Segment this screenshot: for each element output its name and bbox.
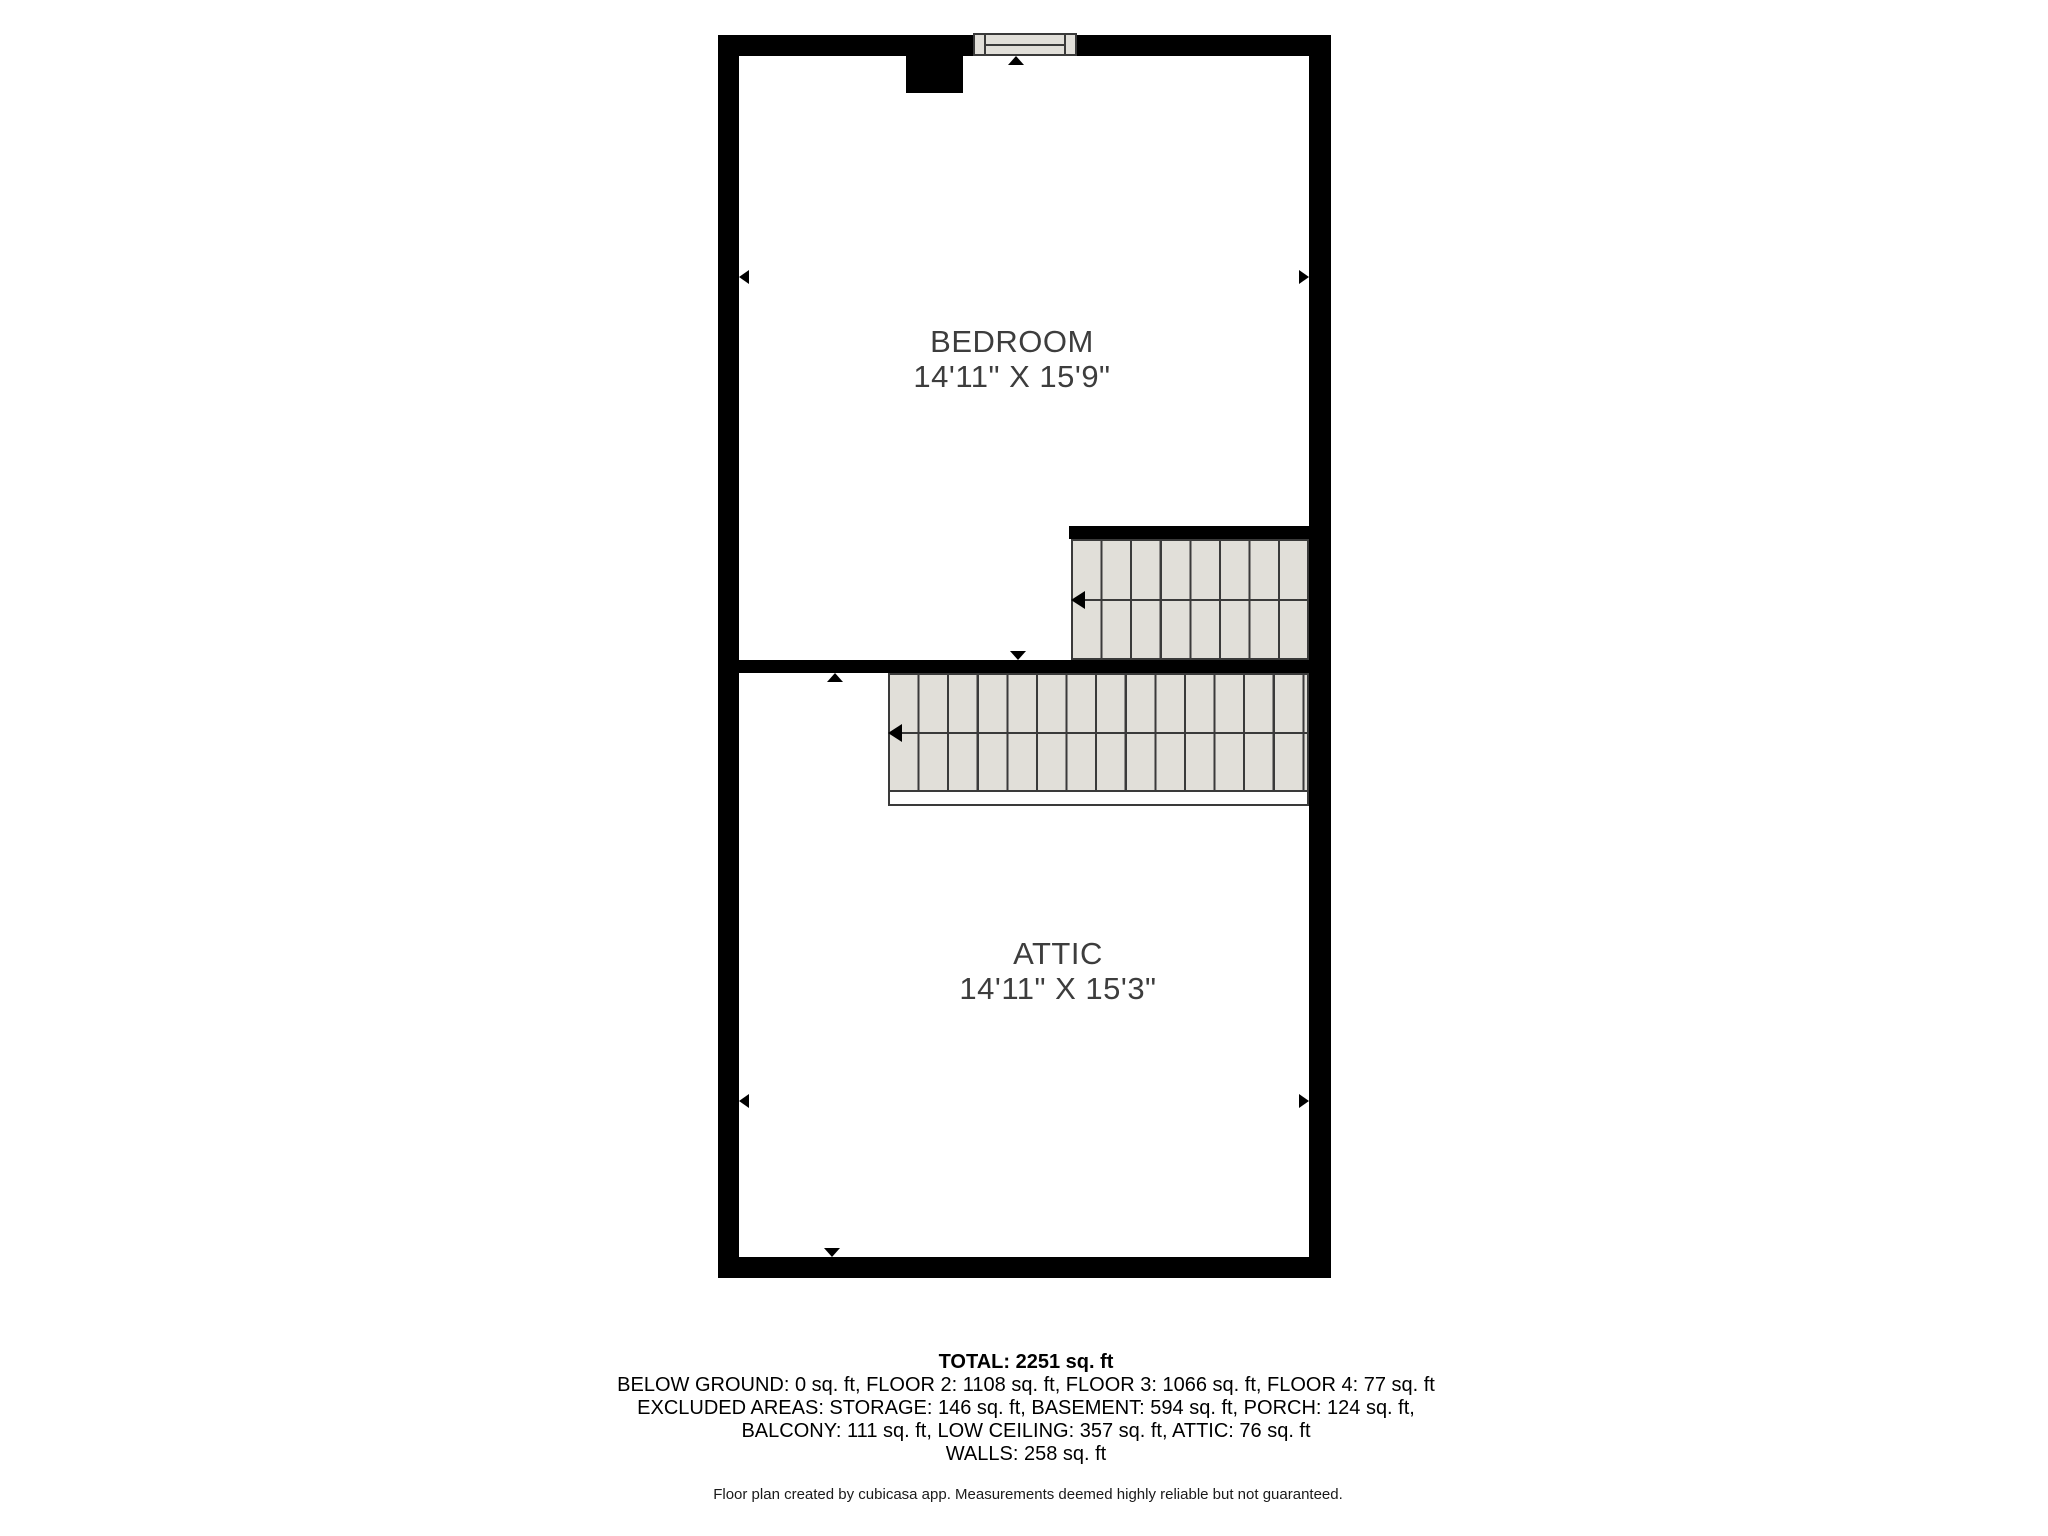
area-summary: TOTAL: 2251 sq. ft BELOW GROUND: 0 sq. f… xyxy=(617,1351,1435,1466)
arrow-attic-left xyxy=(739,1094,749,1108)
window-cap-right xyxy=(1064,35,1066,54)
disclaimer-text: Floor plan created by cubicasa app. Meas… xyxy=(713,1486,1343,1503)
arrow-bedroom-left xyxy=(739,270,749,284)
arrow-attic-right xyxy=(1299,1094,1309,1108)
room-dimensions-bedroom: 14'11" X 15'9" xyxy=(913,359,1110,394)
area-line-excluded: EXCLUDED AREAS: STORAGE: 146 sq. ft, BAS… xyxy=(617,1397,1435,1420)
area-line-balcony: BALCONY: 111 sq. ft, LOW CEILING: 357 sq… xyxy=(617,1420,1435,1443)
room-name-bedroom: BEDROOM xyxy=(913,324,1110,359)
room-label-attic: ATTIC 14'11" X 15'3" xyxy=(959,936,1156,1006)
arrow-window-up xyxy=(1008,56,1024,65)
stair-run-arrow-upper xyxy=(1071,591,1085,609)
arrow-divider-up xyxy=(827,673,843,682)
window xyxy=(973,33,1077,56)
stair-run-line-lower xyxy=(890,732,1307,734)
staircase-lower xyxy=(888,673,1309,792)
chimney-block xyxy=(906,55,963,93)
wall-left xyxy=(718,35,739,1278)
staircase-upper xyxy=(1071,539,1309,660)
room-dimensions-attic: 14'11" X 15'3" xyxy=(959,971,1156,1006)
stair-opening-edge xyxy=(1069,526,1331,539)
wall-right xyxy=(1309,35,1331,1278)
stair-run-arrow-lower xyxy=(888,724,902,742)
window-mid-line xyxy=(986,44,1064,46)
room-name-attic: ATTIC xyxy=(959,936,1156,971)
area-line-walls: WALLS: 258 sq. ft xyxy=(617,1443,1435,1466)
wall-bottom xyxy=(718,1257,1331,1278)
stair-landing xyxy=(888,790,1309,806)
total-area: TOTAL: 2251 sq. ft xyxy=(617,1351,1435,1374)
room-label-bedroom: BEDROOM 14'11" X 15'9" xyxy=(913,324,1110,394)
stair-run-line-upper xyxy=(1073,599,1307,601)
floor-plan-page: BEDROOM 14'11" X 15'9" ATTIC 14'11" X 15… xyxy=(0,0,2048,1536)
arrow-divider-down xyxy=(1010,651,1026,660)
arrow-bottom-down xyxy=(824,1248,840,1257)
area-line-floors: BELOW GROUND: 0 sq. ft, FLOOR 2: 1108 sq… xyxy=(617,1374,1435,1397)
arrow-bedroom-right xyxy=(1299,270,1309,284)
wall-interior-divider xyxy=(739,660,1309,673)
